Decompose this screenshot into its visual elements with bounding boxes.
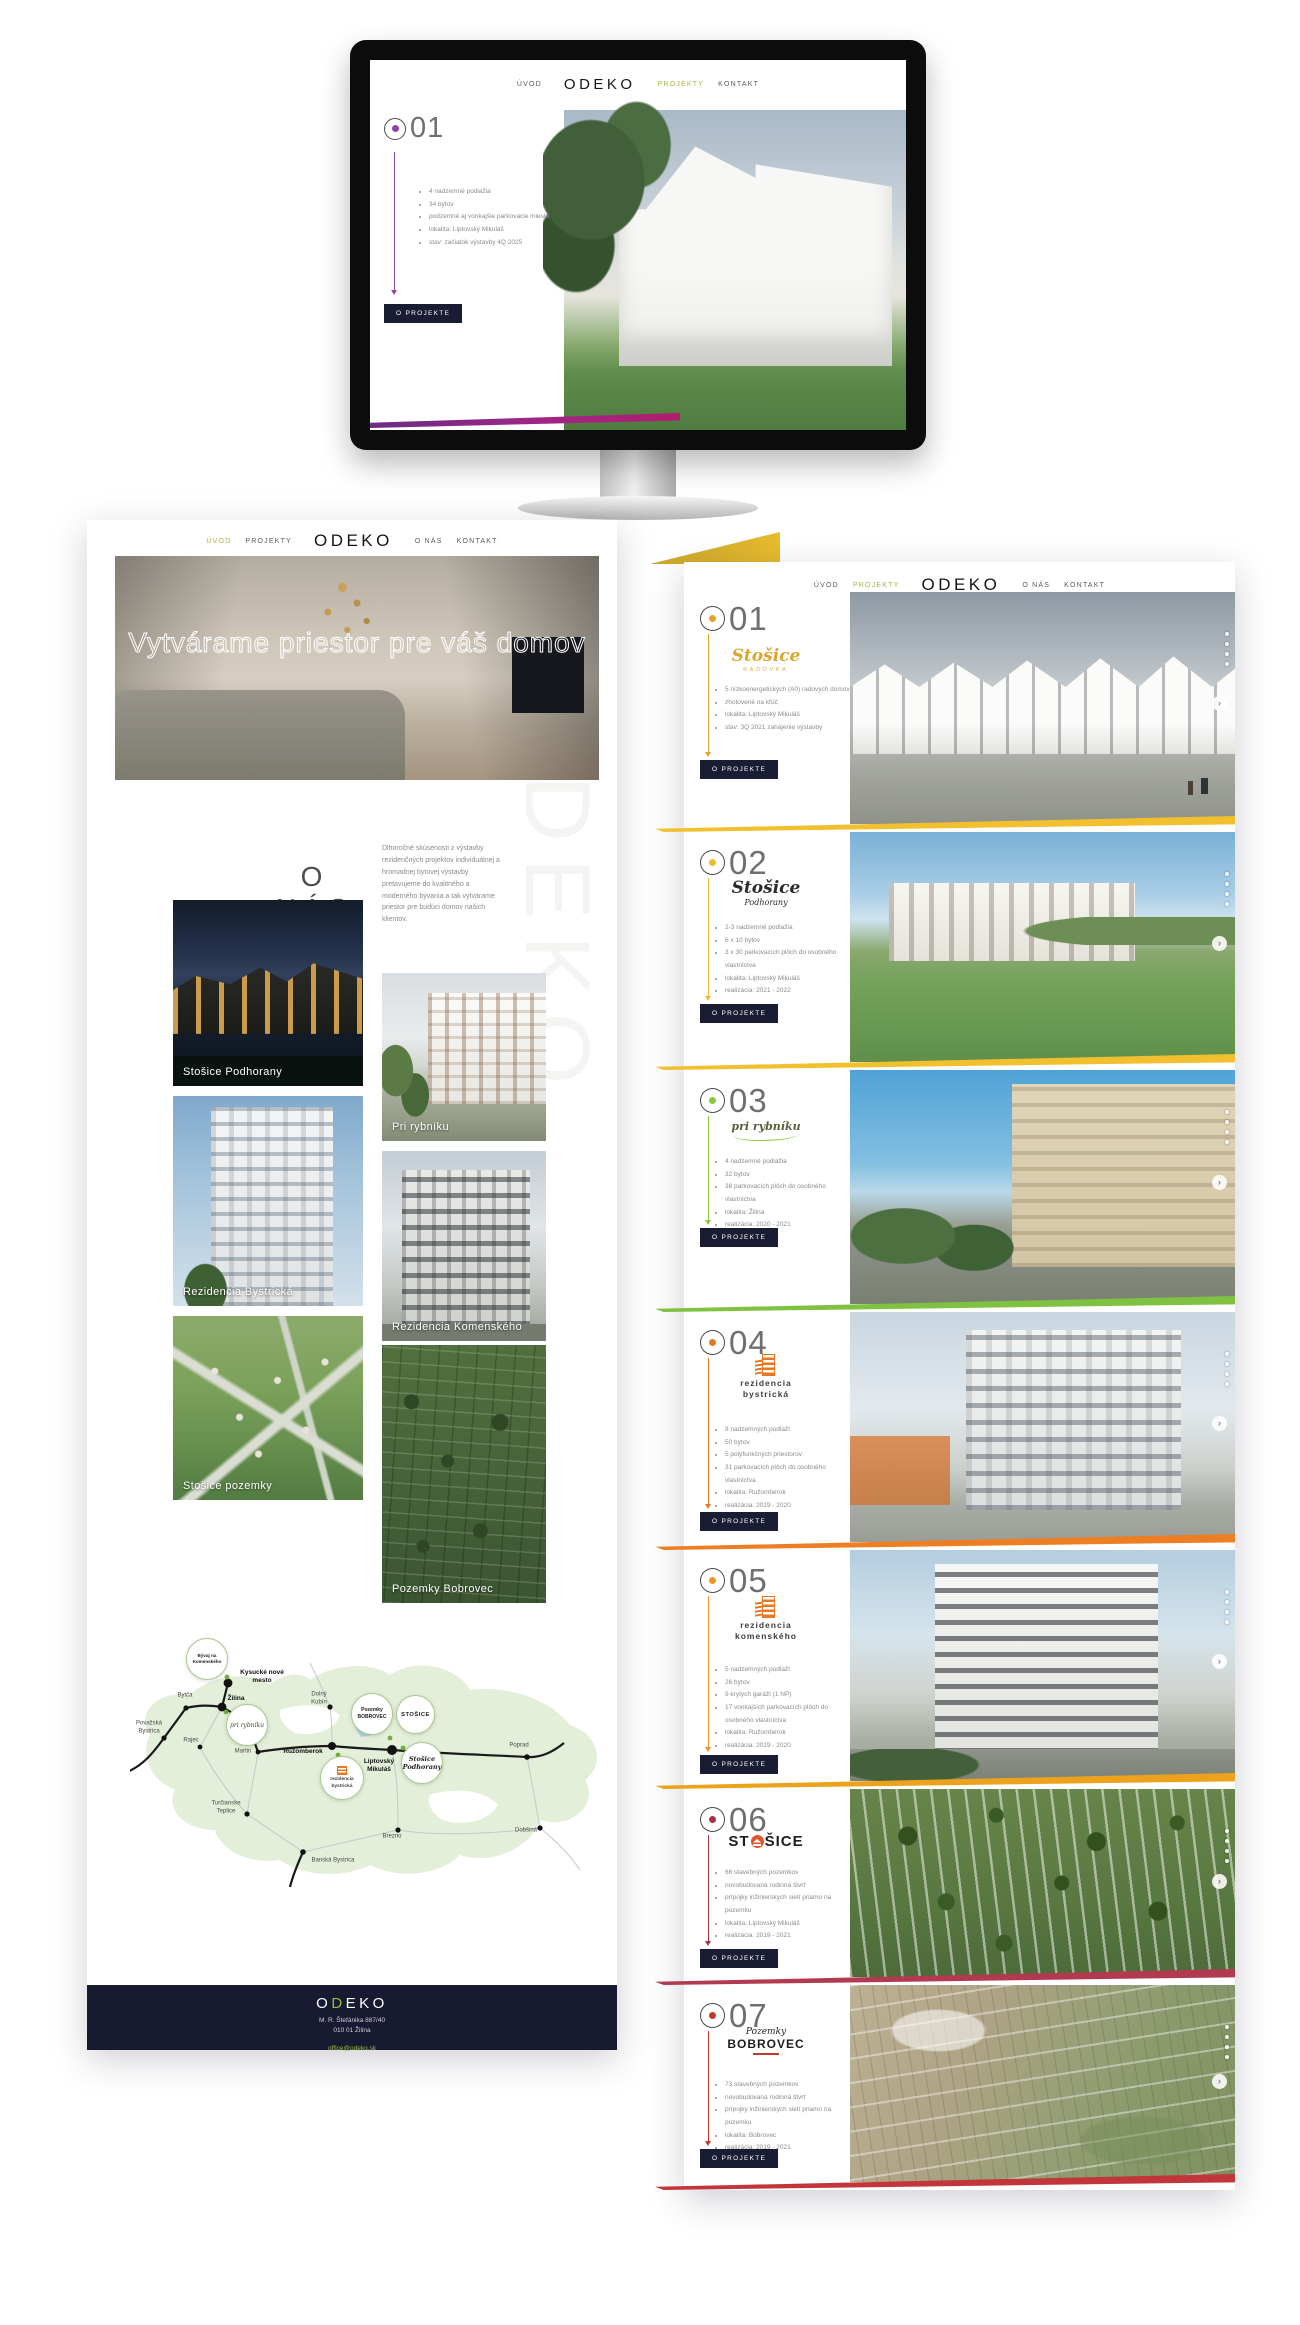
building-icon [754,1596,778,1616]
project-logo: rezidenciabystrická [694,1354,838,1400]
hero-title: Vytvárame priestor pre váš domov [115,624,599,662]
o-projekte-button[interactable]: O PROJEKTE [700,760,778,779]
ring-dot-icon [700,1807,725,1832]
project-section-02: 02 Stošice Podhorany 2-3 nadzemné podlaž… [684,832,1235,1070]
next-arrow-icon[interactable]: › [1212,936,1227,951]
projects-nav: ÚVOD PROJEKTY ODEKO O NÁS KONTAKT [684,575,1235,595]
projects-panel: ÚVOD PROJEKTY ODEKO O NÁS KONTAKT 01 Sto… [684,562,1235,2190]
nav-projekty[interactable]: PROJEKTY [658,81,705,88]
building-icon [337,1766,347,1775]
monitor-stand [600,449,676,499]
odeko-logo[interactable]: ODEKO [921,575,1000,595]
nav-uvod[interactable]: ÚVOD [517,81,542,88]
nav-kontakt[interactable]: KONTAKT [457,538,498,545]
ring-dot-icon [700,1568,725,1593]
monitor-screen: ÚVOD ODEKO PROJEKTY KONTAKT 01 4 nadzemn… [370,60,906,430]
project-section-07: 07 Pozemky BOBROVEC 73 stavebných pozemk… [684,1985,1235,2190]
project-facts: 2-3 nadzemné podlažia 6 x 10 bytov 3 x 3… [714,922,857,998]
footer-odeko-logo: ODEKO [87,1995,617,2012]
odeko-logo[interactable]: ODEKO [564,76,636,93]
nav-kontakt[interactable]: KONTAKT [1064,582,1105,589]
homepage-panel: ÚVOD PROJEKTY ODEKO O NÁS KONTAKT ODEKO … [87,520,617,2050]
next-arrow-icon[interactable]: › [1212,1175,1227,1190]
ring-dot-icon [700,2003,725,2028]
project-section-04: 04 rezidenciabystrická 8 nadzemných podl… [684,1312,1235,1550]
map-city-label: Kysucké nové mesto [237,1669,287,1685]
map-city-label: Brezno [382,1833,401,1841]
next-arrow-icon[interactable]: › [1212,1874,1227,1889]
footer-address: M. R. Štefánika 887/40 010 01 Žilina [87,2016,617,2037]
gallery-card-stosice-podhorany[interactable]: Stošice Podhorany [173,900,363,1086]
carousel-dots[interactable] [1225,872,1229,906]
project-number: 02 [700,846,768,879]
project-facts: 4 nadzemné podlažia 34 bytov podzemné aj… [418,186,569,249]
monitor-base [518,496,758,520]
building-icon [754,1354,778,1374]
map-city-label: Žilina [228,1695,245,1703]
o-projekte-button[interactable]: O PROJEKTE [384,304,462,323]
project-logo: rezidenciakomenského [694,1596,838,1642]
hero-image: Vytvárame priestor pre váš domov [115,556,599,780]
map-badge-pri-rybniku: pri rybníku [226,1704,268,1746]
carousel-dots[interactable] [1225,632,1229,666]
project-photo[interactable]: › [850,1312,1235,1542]
project-section-06: 06 STŠICE 66 stavebných pozemkov novobud… [684,1789,1235,1985]
gallery-caption: Rezidencia Bystrická [183,1286,293,1298]
project-photo[interactable] [564,110,906,430]
project-logo: Stošice Podhorany [694,878,838,907]
accent-ribbon [650,532,780,564]
o-projekte-button[interactable]: O PROJEKTE [700,1755,778,1774]
carousel-dots[interactable] [1225,1829,1229,1863]
gallery-caption: Rezidencia Komenského [392,1321,522,1333]
map-badge-stosice-podhorany: Stošice Podhorany [401,1742,443,1784]
project-section-05: 05 rezidenciakomenského 5 nadzemných pod… [684,1550,1235,1789]
project-number: 05 [700,1564,768,1597]
carousel-dots[interactable] [1225,1590,1229,1624]
timeline-arrow-icon [394,152,395,290]
map-city-label: Poprad [509,1742,528,1750]
project-facts: 66 stavebných pozemkov novobudovaná rodi… [714,1867,857,1943]
gallery-caption: Pri rybníku [392,1121,449,1133]
project-number: 01 [384,114,444,143]
gallery-card-pozemky-bobrovec[interactable]: Pozemky Bobrovec [382,1345,546,1603]
ring-dot-icon [700,606,725,631]
nav-o-nas[interactable]: O NÁS [415,538,443,545]
project-facts: 73 stavebných pozemkov novobudovaná rodi… [714,2079,857,2155]
odeko-logo[interactable]: ODEKO [314,531,393,551]
map-city-label: Banská Bystrica [301,1857,365,1865]
house-circle-icon [751,1835,764,1848]
map-badge-rezidencia-bystricka: rezidencia bystrická [320,1756,364,1800]
nav-uvod[interactable]: ÚVOD [814,582,839,589]
locations-map: Považská Bystrica Bytča Žilina Kysucké n… [130,1615,615,1890]
swoosh-underline-icon [734,1133,798,1141]
next-arrow-icon[interactable]: › [1212,696,1227,711]
project-facts: 8 nadzemných podlaží 50 bytov 5 polyfunk… [714,1424,857,1513]
nav-kontakt[interactable]: KONTAKT [718,81,759,88]
map-city-label: Dobšiná [515,1827,537,1835]
map-city-label: Liptovský Mikuláš [358,1758,400,1774]
gallery-caption: Pozemky Bobrovec [392,1583,493,1595]
site-footer: ODEKO M. R. Štefánika 887/40 010 01 Žili… [87,1985,617,2050]
monitor-nav: ÚVOD ODEKO PROJEKTY KONTAKT [370,76,906,93]
gallery-card-stosice-pozemky[interactable]: Stošice pozemky [173,1316,363,1500]
map-city-label: Rajec [183,1737,198,1745]
nav-o-nas[interactable]: O NÁS [1022,582,1050,589]
carousel-dots[interactable] [1225,1352,1229,1386]
project-photo[interactable]: › [850,1789,1235,1977]
project-number: 01 [700,602,768,635]
ring-dot-icon [700,1330,725,1355]
project-facts: 5 nízkoenergetických (A0) radových domov… [714,684,857,735]
nav-projekty[interactable]: PROJEKTY [245,538,292,545]
carousel-dots[interactable] [1225,2025,1229,2059]
gallery-caption: Stošice pozemky [183,1480,272,1492]
map-city-label: Bytča [177,1692,192,1700]
project-photo[interactable]: › [850,1070,1235,1304]
project-logo: Pozemky BOBROVEC [694,2027,838,2055]
project-logo: Stošice RADOVKA [694,646,838,673]
o-projekte-button[interactable]: O PROJEKTE [700,2149,778,2168]
project-photo[interactable]: › [850,1550,1235,1781]
project-section-01: 01 Stošice RADOVKA 5 nízkoenergetických … [684,562,1235,832]
project-photo[interactable]: › [850,1985,1235,2182]
carousel-dots[interactable] [1225,1110,1229,1144]
project-section-03: 03 pri rybníku 4 nadzemné podlažia 32 by… [684,1070,1235,1312]
next-arrow-icon[interactable]: › [1212,1654,1227,1669]
map-city-label: Martin [235,1748,252,1756]
project-number: 03 [700,1084,768,1117]
nav-projekty[interactable]: PROJEKTY [853,582,900,589]
gallery-caption: Stošice Podhorany [183,1066,282,1078]
map-badge-stosice: STOŠICE [396,1695,435,1734]
desktop-monitor-mockup: ÚVOD ODEKO PROJEKTY KONTAKT 01 4 nadzemn… [350,40,926,450]
o-projekte-button[interactable]: O PROJEKTE [700,1949,778,1968]
map-city-label: Ružomberok [283,1748,322,1756]
timeline-arrow-icon [708,1835,709,1941]
o-projekte-button[interactable]: O PROJEKTE [700,1004,778,1023]
project-logo: pri rybníku [694,1120,838,1141]
homepage-nav: ÚVOD PROJEKTY ODEKO O NÁS KONTAKT [87,531,617,551]
o-projekte-button[interactable]: O PROJEKTE [700,1228,778,1247]
map-city-label: Turčianske Teplice [205,1801,247,1816]
ring-dot-icon [700,1088,725,1113]
project-facts: 4 nadzemné podlažia 32 bytov 38 parkovac… [714,1156,857,1232]
map-badge-pozemky-bobrovec: Pozemky BOBROVEC [351,1693,393,1735]
project-photo[interactable]: › [850,592,1235,824]
next-arrow-icon[interactable]: › [1212,2074,1227,2089]
map-city-label: Dolný Kubín [303,1692,335,1707]
project-logo: STŠICE [694,1833,838,1850]
project-number: 06 [700,1803,768,1836]
gallery-card-rezidencia-bystricka[interactable]: Rezidencia Bystrická [173,1096,363,1306]
project-facts: 5 nadzemných podlaží 26 bytov 9 krytých … [714,1664,857,1753]
footer-email-link[interactable]: office@odeko.sk [328,2045,376,2052]
project-photo[interactable]: › [850,832,1235,1062]
map-badge-byvaj-na-komenskeho: Bývaj na Komenského [186,1638,228,1680]
o-projekte-button[interactable]: O PROJEKTE [700,1512,778,1531]
ring-dot-icon [700,850,725,875]
gallery-card-rezidencia-komenskeho[interactable]: Rezidencia Komenského [382,1151,546,1341]
next-arrow-icon[interactable]: › [1212,1416,1227,1431]
map-city-label: Považská Bystrica [128,1721,170,1736]
ring-dot-icon [384,118,406,140]
nav-uvod[interactable]: ÚVOD [206,538,231,545]
gallery-card-pri-rybniku[interactable]: Pri rybníku [382,973,546,1141]
about-text: Dlhoročné skúsenosti z výstavby rezidenč… [382,843,502,926]
